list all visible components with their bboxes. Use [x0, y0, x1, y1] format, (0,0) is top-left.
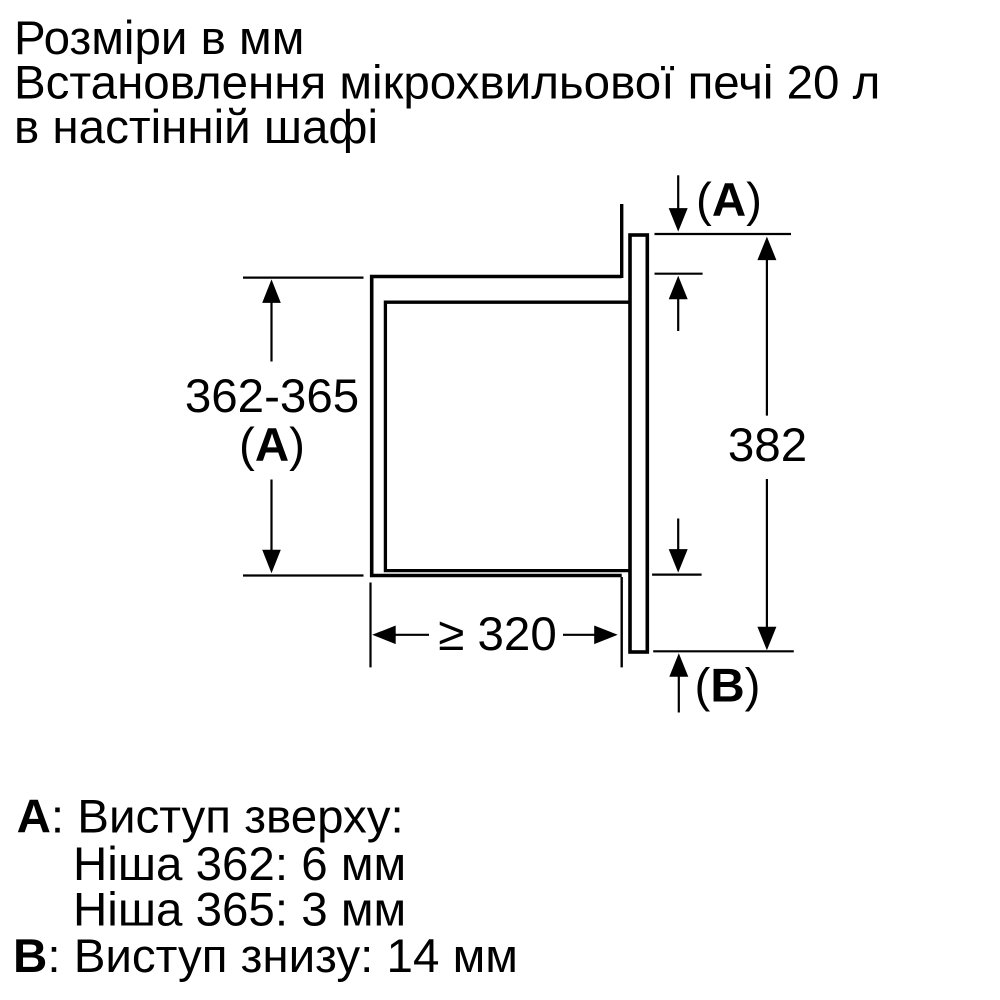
- svg-text:B: Виступ знизу: 14 мм: B: Виступ знизу: 14 мм: [13, 930, 518, 983]
- svg-text:≥ 320: ≥ 320: [438, 608, 557, 661]
- svg-text:(A): (A): [696, 174, 762, 227]
- svg-text:в настінній шафі: в настінній шафі: [14, 101, 378, 154]
- svg-text:362-365: 362-365: [185, 370, 359, 423]
- svg-text:382: 382: [728, 419, 807, 472]
- svg-text:(A): (A): [239, 419, 305, 472]
- svg-text:(B): (B): [695, 659, 761, 712]
- svg-text:A: Виступ зверху:: A: Виступ зверху:: [17, 791, 404, 844]
- svg-text:Ніша 365: 3 мм: Ніша 365: 3 мм: [73, 884, 406, 937]
